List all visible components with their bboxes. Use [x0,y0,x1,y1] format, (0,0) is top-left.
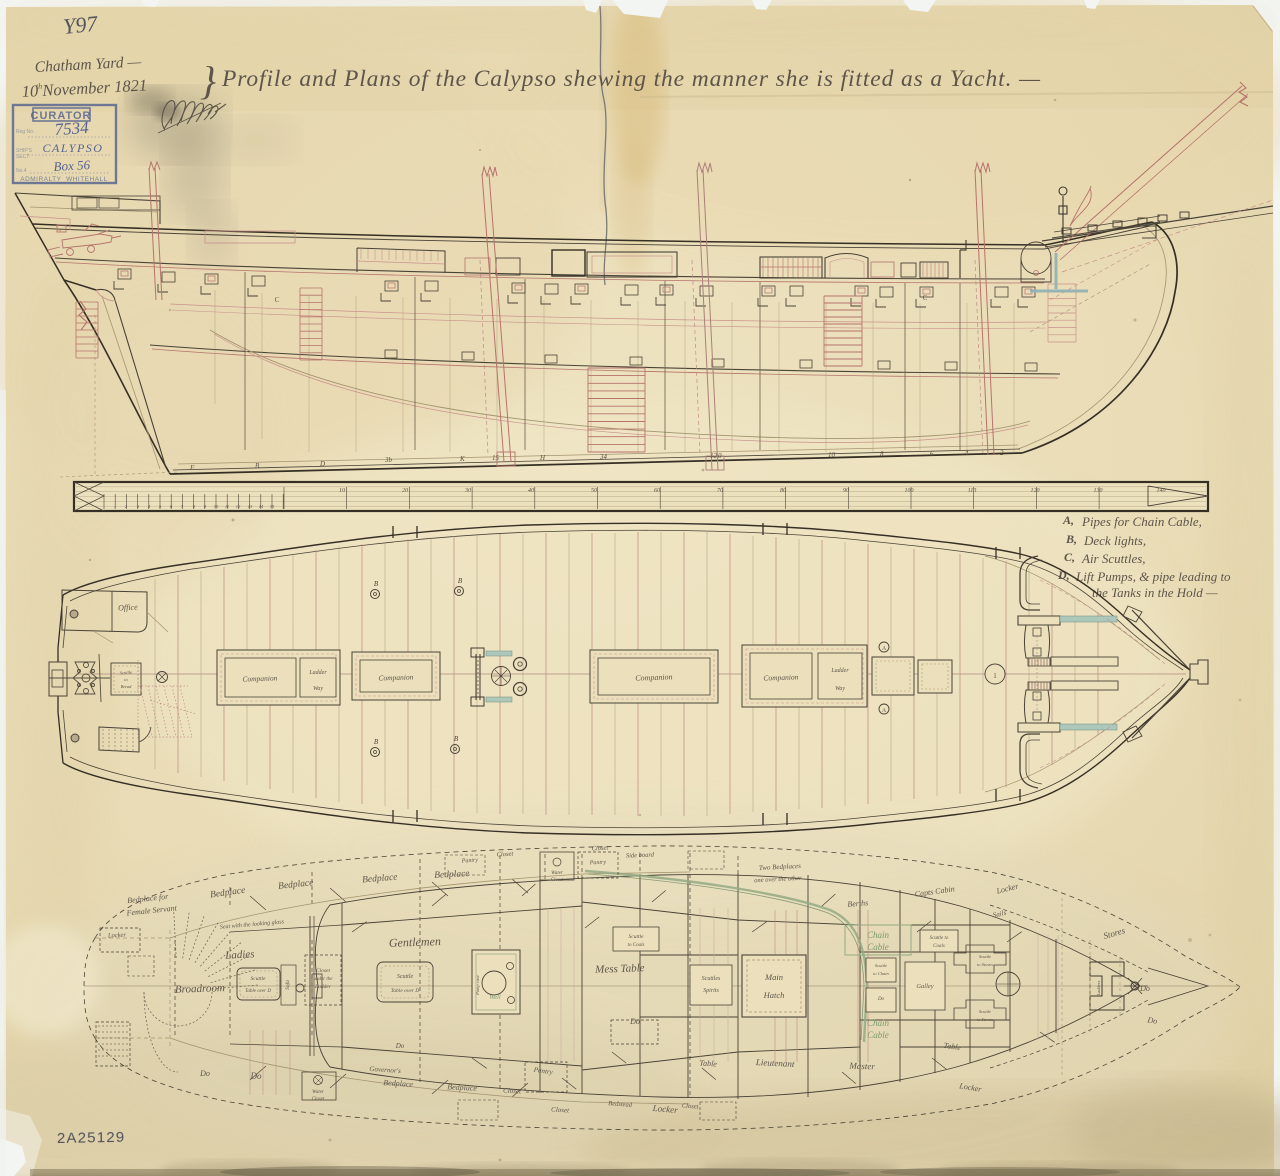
svg-text:30: 30 [464,488,471,494]
svg-text:Closet: Closet [551,878,564,883]
svg-text:15: 15 [270,504,275,509]
svg-text:Bedplace: Bedplace [447,1082,478,1093]
svg-text:Main: Main [764,972,783,982]
svg-text:to Coals: to Coals [628,943,645,948]
svg-text:12: 12 [236,504,241,509]
svg-text:Deck lights,: Deck lights, [1083,533,1146,548]
svg-text:Closet: Closet [496,851,513,859]
svg-text:Ladies: Ladies [224,948,255,962]
svg-text:60: 60 [654,488,660,494]
svg-text:the Tanks in the Hold —: the Tanks in the Hold — [1092,585,1218,600]
svg-text:3b: 3b [384,456,393,464]
svg-text:Air Scuttles,: Air Scuttles, [1081,551,1146,566]
svg-text:Scuttle: Scuttle [875,963,887,968]
svg-text:Scuttle: Scuttle [979,954,991,959]
svg-text:Spirits: Spirits [703,988,719,994]
svg-text:10: 10 [828,451,836,459]
svg-text:Scuttle: Scuttle [397,974,414,980]
svg-text:20: 20 [402,488,408,494]
svg-text:90: 90 [843,488,849,494]
svg-text:1: 1 [114,504,116,509]
svg-text:B: B [458,577,463,585]
svg-text:0: 0 [718,452,722,460]
svg-text:Scuttle: Scuttle [120,670,132,676]
svg-text:Water: Water [551,871,563,876]
svg-text:Ladder: Ladder [314,984,332,990]
svg-text:2A25129: 2A25129 [57,1129,126,1147]
svg-text:Bedplace: Bedplace [434,869,470,881]
svg-text:K: K [459,455,465,463]
svg-text:Box 56: Box 56 [53,157,91,174]
svg-text:Companion: Companion [378,672,414,682]
svg-text:Side board: Side board [626,851,655,859]
svg-text:14: 14 [259,504,264,509]
svg-text:70: 70 [717,488,723,494]
svg-text:80: 80 [780,488,786,494]
svg-text:40: 40 [528,487,534,494]
svg-text:Closet: Closet [682,1102,699,1110]
svg-text:H: H [539,454,546,462]
svg-text:Coals: Coals [933,944,945,949]
svg-text:Cable: Cable [867,942,889,952]
svg-text:Master: Master [848,1061,875,1072]
svg-text:10: 10 [214,504,219,509]
svg-text:Companion: Companion [242,673,278,683]
svg-text:CALYPSO: CALYPSO [43,141,104,155]
svg-text:C: C [275,296,280,304]
svg-text:Gentlemen: Gentlemen [389,934,441,950]
svg-text:to Chain: to Chain [873,971,889,976]
svg-text:7534: 7534 [54,118,90,139]
svg-text:50: 50 [591,488,597,494]
svg-text:110: 110 [968,488,977,494]
svg-text:B: B [374,738,379,746]
svg-text:Scuttle: Scuttle [979,1009,991,1014]
svg-text:Do: Do [1139,984,1150,993]
svg-text:Closet: Closet [551,1106,570,1115]
svg-text:Way: Way [835,686,845,692]
svg-text:Closet: Closet [503,1087,522,1096]
svg-text:Galley: Galley [916,983,933,990]
svg-text:Companion: Companion [763,672,799,682]
svg-text:Cable: Cable [867,1030,889,1040]
svg-text:Scuttle: Scuttle [629,934,645,940]
svg-text:Y97: Y97 [62,10,100,39]
svg-text:B,: B, [1065,532,1077,546]
svg-text:100: 100 [905,488,914,494]
svg-text:F: F [189,464,195,472]
svg-text:Profile and Plans of the Calyp: Profile and Plans of the Calypso shewing… [221,66,1041,92]
svg-text:8: 8 [880,450,884,458]
svg-text:Scuttle: Scuttle [251,976,267,982]
svg-text:No.4: No.4 [16,168,27,174]
svg-text:B: B [454,735,459,743]
svg-text:Berths: Berths [847,898,869,909]
svg-text:Pantry: Pantry [461,857,479,864]
svg-text:}: } [200,58,216,103]
svg-text:13: 13 [248,504,253,509]
svg-text:A,: A, [1062,513,1074,527]
svg-text:Locker: Locker [107,932,127,940]
svg-text:Do: Do [877,997,885,1002]
svg-text:Do: Do [250,1071,262,1081]
svg-text:140: 140 [1157,487,1166,494]
svg-text:Mess Table: Mess Table [594,962,645,976]
svg-text:12: 12 [710,452,718,460]
svg-text:1: 1 [993,672,997,680]
svg-text:Do: Do [395,1042,405,1050]
svg-text:to Stoves: to Stoves [977,962,993,967]
svg-text:Broadroom: Broadroom [175,982,225,996]
svg-text:D: D [319,460,325,468]
svg-text:Closet: Closet [312,1097,325,1102]
svg-text:Bread: Bread [121,684,133,689]
svg-text:Table over D: Table over D [245,989,271,994]
svg-text:Chain: Chain [867,1018,890,1028]
svg-text:130: 130 [1094,488,1103,494]
svg-text:C: C [923,294,928,302]
svg-text:Companion: Companion [635,672,673,682]
svg-text:Pump case: Pump case [475,975,480,996]
svg-text:Scuttles: Scuttles [702,976,721,982]
svg-text:Water: Water [312,1090,324,1095]
svg-text:Ladder: Ladder [308,670,327,676]
svg-text:ADMIRALTY WHITEHALL: ADMIRALTY WHITEHALL [20,176,108,183]
svg-text:Do: Do [1146,1015,1158,1026]
svg-text:10: 10 [339,488,345,494]
svg-text:6: 6 [930,450,934,458]
svg-text:B: B [255,462,260,470]
svg-text:Table over D: Table over D [391,988,420,994]
svg-text:Hatch: Hatch [763,990,785,1000]
svg-text:Pantry: Pantry [589,860,607,867]
svg-text:A: A [882,646,887,652]
svg-text:Lift Pumps, & pipe leading to: Lift Pumps, & pipe leading to [1075,569,1231,584]
svg-text:15: 15 [492,454,500,462]
svg-text:Do: Do [199,1069,210,1078]
svg-text:to Stoves: to Stoves [977,1017,993,1022]
svg-text:Ladders: Ladders [1096,980,1101,996]
svg-text:120: 120 [1031,488,1040,494]
svg-text:under the: under the [313,977,333,982]
svg-text:Scuttle to: Scuttle to [930,936,949,941]
svg-text:Pipes for Chain Cable,: Pipes for Chain Cable, [1081,514,1202,529]
svg-text:Well: Well [489,994,501,1001]
svg-text:11: 11 [225,504,229,509]
svg-text:B: B [374,580,379,588]
svg-text:Table: Table [699,1058,718,1068]
svg-text:Do: Do [629,1017,640,1026]
svg-text:Lieutenant: Lieutenant [755,1057,795,1069]
svg-text:4: 4 [965,449,969,457]
svg-text:A: A [882,708,887,714]
svg-text:2: 2 [1000,449,1004,457]
svg-text:D,: D, [1057,568,1070,582]
svg-text:th: th [36,82,43,91]
svg-text:C,: C, [1064,550,1075,564]
svg-text:Ladder: Ladder [830,668,849,674]
svg-text:Office: Office [118,602,138,612]
svg-text:Way: Way [313,686,323,692]
svg-text:34: 34 [599,453,608,461]
svg-text:Reg No.: Reg No. [16,129,34,135]
svg-text:Sofa: Sofa [284,980,291,990]
svg-text:Closet: Closet [591,845,608,853]
svg-text:Closet: Closet [316,968,331,974]
svg-text:Chain: Chain [867,930,890,940]
